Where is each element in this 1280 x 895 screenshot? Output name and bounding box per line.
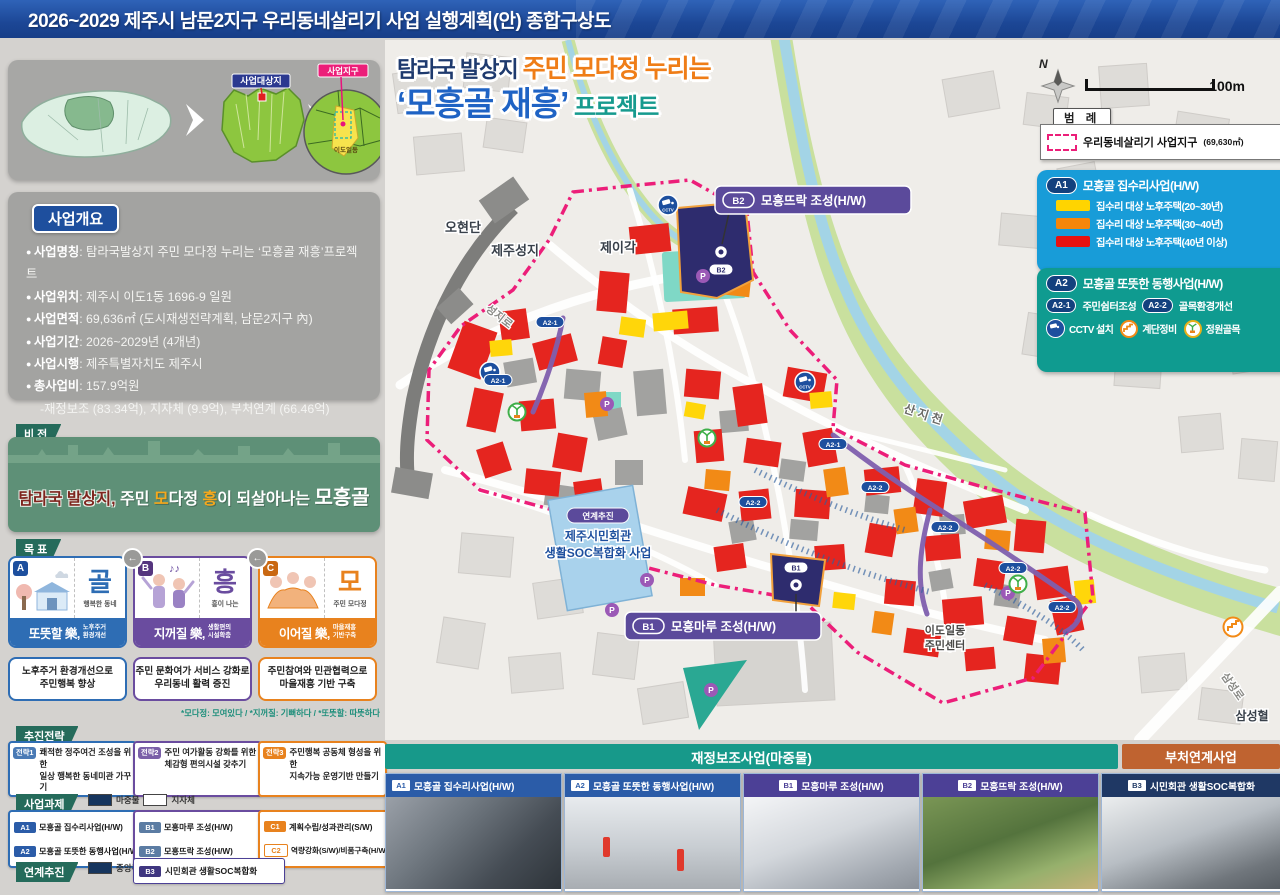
stairs-icon bbox=[1224, 618, 1243, 637]
card-badge: A1 bbox=[392, 780, 410, 791]
community-center-label-1: 이도일동 bbox=[925, 623, 965, 637]
compass-n: N bbox=[1039, 57, 1048, 71]
photo-a1-site-survey bbox=[386, 797, 561, 889]
left-arrow-icon: ← bbox=[122, 548, 143, 569]
headline-pre: 탐라국 발상지 bbox=[397, 57, 523, 82]
b2-callout-label: 모흥뜨락 조성(H/W) bbox=[761, 193, 866, 208]
card-title: 모흥뜨락 조성(H/W) bbox=[980, 779, 1062, 793]
legend-grade-3: 집수리 대상 노후주택(40년 이상) bbox=[1056, 234, 1280, 249]
task-item: B1모흥마루 조성(H/W) bbox=[139, 821, 258, 833]
goal-subtitle: 마을재흥 기반구축 bbox=[333, 624, 356, 639]
central-gov-swatch bbox=[88, 862, 112, 874]
strategy-1: 전략1 쾌적한 정주여건 조성을 위한 일상 행복한 동네미관 가꾸기 bbox=[8, 741, 137, 797]
garden-label: 정원골목 bbox=[1206, 321, 1240, 336]
task-item: B2모흥뜨락 조성(H/W) bbox=[139, 845, 258, 857]
overview-item: 사업시행: 제주특별자치도 제주시 bbox=[26, 353, 366, 375]
legend-district-item: 우리동네살리기 사업지구 (69,630㎡) bbox=[1040, 124, 1280, 160]
tasks-legend: 마중물 지자체 bbox=[88, 794, 195, 806]
dong-label: 이도일동 bbox=[334, 145, 358, 154]
b2-site: B2 bbox=[677, 202, 753, 298]
card-title: 시민회관 생활SOC복합화 bbox=[1150, 779, 1255, 793]
task-item: C2역량강화(S/W)/비품구축(H/W) bbox=[264, 844, 383, 857]
b1-callout-badge: B1 bbox=[642, 622, 655, 633]
district-badge: 사업지구 bbox=[327, 66, 358, 76]
goal-subtitle: 생활편의 시설확충 bbox=[208, 624, 231, 639]
a2-title: 모흥골 또뜻한 동행사업(H/W) bbox=[1083, 275, 1223, 292]
legend-grade-1: 집수리 대상 노후주택(20~30년) bbox=[1056, 198, 1280, 213]
overview-item: 사업기간: 2026~2029년 (4개년) bbox=[26, 331, 366, 353]
svg-text:P: P bbox=[644, 575, 650, 585]
legend-a1-panel: A1 모흥골 집수리사업(H/W) 집수리 대상 노후주택(20~30년) 집수… bbox=[1037, 170, 1280, 272]
local-gov-label: 지자체 bbox=[171, 794, 194, 806]
b1-site: B1 bbox=[771, 554, 825, 606]
project-card-b1: B1 모흥마루 조성(H/W) bbox=[743, 773, 920, 892]
page-title: 2026~2029 제주시 남문2지구 우리동네살리기 사업 실행계획(안) 종… bbox=[0, 6, 611, 33]
project-card-a1: A1 모흥골 집수리사업(H/W) bbox=[385, 773, 562, 892]
location-inset-maps: 사업대상지 이도일동 사업지구 bbox=[8, 60, 380, 180]
overview-item: 총사업비: 157.9억원 bbox=[26, 375, 366, 397]
strategy-3: 전략3 주민행복 공동체 형성을 위한 지속가능 운영기반 만들기 bbox=[258, 741, 387, 797]
photo-a2-street-rendering bbox=[565, 797, 740, 889]
linked-task-b3: B3 시민회관 생활SOC복합화 bbox=[133, 858, 285, 884]
jeju-island-map bbox=[22, 91, 171, 157]
goal-caption: 행복한 동네 bbox=[83, 598, 116, 608]
cctv-icon bbox=[1046, 319, 1065, 338]
b3-badge: B3 bbox=[139, 866, 161, 877]
map-headline: 탐라국 발상지 주민 모다정 누리는 ‘모흥골 재흥’ 프로젝트 bbox=[397, 54, 877, 124]
garden-icon bbox=[1184, 320, 1202, 338]
vision-box: 탐라국 발상지, 주민 모다정 흥이 되살아나는 모흥골 bbox=[8, 437, 380, 532]
ohyeondan-label: 오현단 bbox=[445, 220, 481, 235]
svg-text:P: P bbox=[700, 271, 706, 281]
svg-text:A2-2: A2-2 bbox=[746, 500, 761, 507]
subsidy-projects-header: 재정보조사업(마중물) bbox=[385, 744, 1118, 769]
b3-label: 시민회관 생활SOC복합화 bbox=[165, 865, 257, 877]
svg-text:A2-2: A2-2 bbox=[868, 485, 883, 492]
svg-text:A2-1: A2-1 bbox=[543, 320, 558, 327]
b2-callout-badge: B2 bbox=[732, 196, 744, 207]
local-gov-swatch bbox=[143, 794, 167, 806]
strategy-text: 주민 여가활동 강화를 위한 체감형 편의시설 갖추기 bbox=[164, 747, 256, 791]
chevron-right-icon bbox=[186, 104, 204, 136]
left-arrow-icon: ← bbox=[247, 548, 268, 569]
goal-caption: 흥이 나는 bbox=[212, 598, 239, 608]
overview-item: 사업명칭: 탐라국발상지 주민 모다정 누리는 ‘모흥골 재흥’프로젝트 bbox=[26, 241, 366, 286]
goal-description: 주민참여와 민관협력으로 마을재흥 기반 구축 bbox=[258, 657, 377, 701]
goal-subtitle: 노후주거 환경개선 bbox=[83, 624, 106, 639]
a2-1-label: 주민쉼터조성 bbox=[1082, 298, 1136, 313]
district-boundary-swatch bbox=[1047, 134, 1077, 151]
stairs-label: 계단정비 bbox=[1142, 321, 1176, 336]
linked-site-line2: 생활SOC복합화 사업 bbox=[545, 545, 652, 560]
goal-card-b: B ♪♪ 흥 흥이 나는 지꺼질 樂, 생활편의 시설확충 주민 문화여가 서비… bbox=[133, 556, 252, 701]
fortress-label: 제주성지 bbox=[491, 243, 539, 258]
district-label: 우리동네살리기 사업지구 bbox=[1083, 134, 1197, 150]
legend-a2-panel: A2 모흥골 또뜻한 동행사업(H/W) A2-1 주민쉼터조성 A2-2 골목… bbox=[1037, 268, 1280, 372]
svg-text:CCTV: CCTV bbox=[799, 385, 811, 390]
master-plan-map: B2 B1 연계추진 제주시민회관 생활SOC복합화 사업 오현단 제주성지 제… bbox=[385, 40, 1280, 740]
jeigak-label: 제이각 bbox=[600, 240, 636, 255]
overview-list: 사업명칭: 탐라국발상지 주민 모다정 누리는 ‘모흥골 재흥’프로젝트 사업위… bbox=[26, 241, 366, 420]
linked-site-tag: 연계추진 bbox=[582, 511, 613, 521]
goal-title: 또뜻할 樂, bbox=[29, 623, 80, 642]
photo-b3-soc-rendering bbox=[1102, 797, 1280, 889]
project-card-b3: B3 시민회관 생활SOC복합화 bbox=[1101, 773, 1280, 892]
svg-text:A2-1: A2-1 bbox=[826, 442, 841, 449]
card-title: 모흥골 집수리사업(H/W) bbox=[414, 779, 514, 793]
strategy-text: 쾌적한 정주여건 조성을 위한 일상 행복한 동네미관 가꾸기 bbox=[39, 747, 132, 791]
strategy-2: 전략2 주민 여가활동 강화를 위한 체감형 편의시설 갖추기 bbox=[133, 741, 262, 797]
strategy-text: 주민행복 공동체 형성을 위한 지속가능 운영기반 만들기 bbox=[289, 747, 382, 791]
title-bar: 2026~2029 제주시 남문2지구 우리동네살리기 사업 실행계획(안) 종… bbox=[0, 0, 1280, 38]
svg-text:A2-2: A2-2 bbox=[1055, 605, 1070, 612]
task-item: A1모흥골 집수리사업(H/W) bbox=[14, 821, 133, 833]
goal-description: 노후주거 환경개선으로 주민행복 향상 bbox=[8, 657, 127, 701]
strategy-badge: 전략3 bbox=[263, 747, 286, 759]
scale-label: 100m bbox=[1209, 78, 1245, 94]
plan-poster: { "titlebar": { "title": "2026~2029 제주시 … bbox=[0, 0, 1280, 895]
headline-tail: 프로젝트 bbox=[568, 94, 658, 121]
scale-bar: 100m bbox=[1085, 76, 1245, 98]
task-group-a: A1모흥골 집수리사업(H/W) A2모흥골 또뜻한 동행사업(H/W) bbox=[8, 810, 139, 868]
svg-text:♪♪: ♪♪ bbox=[169, 563, 180, 575]
card-badge: A2 bbox=[571, 780, 589, 791]
svg-text:P: P bbox=[708, 685, 714, 695]
task-item: C1계획수립/성과관리(S/W) bbox=[264, 821, 383, 833]
goal-letter-badge: A bbox=[13, 561, 28, 576]
a1-title: 모흥골 집수리사업(H/W) bbox=[1083, 177, 1199, 194]
north-compass-icon: N bbox=[1033, 56, 1079, 108]
card-title: 모흥마루 조성(H/W) bbox=[801, 779, 883, 793]
linked-tag: 연계추진 bbox=[16, 862, 78, 882]
strategy-badge: 전략1 bbox=[13, 747, 36, 759]
jeju-city-map: 사업대상지 bbox=[222, 74, 304, 162]
goal-description: 주민 문화여가 서비스 강화로 우리동네 활력 증진 bbox=[133, 657, 252, 701]
project-overview-panel: 사업개요 사업명칭: 탐라국발상지 주민 모다정 누리는 ‘모흥골 재흥’프로젝… bbox=[8, 192, 380, 400]
goal-title: 지꺼질 樂, bbox=[154, 623, 205, 642]
svg-text:CCTV: CCTV bbox=[662, 208, 674, 213]
goals-footnote: *모다정: 모여있다 / *지꺼질: 기뻐하다 / *또뜻할: 따뜻하다 bbox=[8, 707, 380, 719]
photo-b1-building-rendering bbox=[744, 797, 919, 889]
samseonghyeol-label: 삼성혈 bbox=[1235, 708, 1268, 723]
goal-hangul: 흥 bbox=[213, 569, 237, 595]
location-inset-panel: 사업대상지 이도일동 사업지구 bbox=[8, 60, 380, 180]
target-site-badge: 사업대상지 bbox=[240, 75, 281, 86]
vision-statement: 탐라국 발상지, 주민 모다정 흥이 되살아나는 모흥골 bbox=[8, 481, 380, 510]
card-badge: B2 bbox=[958, 780, 976, 791]
goal-hangul: 모 bbox=[338, 569, 362, 595]
overview-item: 사업위치: 제주시 이도1동 1696-9 일원 bbox=[26, 286, 366, 308]
stairs-icon bbox=[1120, 320, 1138, 338]
b1-callout-label: 모흥마루 조성(H/W) bbox=[671, 619, 776, 634]
budget-breakdown: -재정보조 (83.34억), 지자체 (9.9억), 부처연계 (66.46억… bbox=[26, 398, 366, 420]
photo-b2-park-aerial bbox=[923, 797, 1098, 889]
red-swatch bbox=[1056, 236, 1090, 247]
a1-pill: A1 bbox=[1046, 177, 1077, 194]
a2-2-label: 골목환경개선 bbox=[1179, 298, 1233, 313]
goal-card-a: A 골 행복한 동네 또뜻할 樂, 노후주거 환경개선 노후주거 환경개선으로 … bbox=[8, 556, 127, 701]
overview-item: 사업면적: 69,636㎡ (도시재생전략계획, 남문2지구 內) bbox=[26, 308, 366, 330]
b1-marker-label: B1 bbox=[792, 566, 801, 573]
project-card-b2: B2 모흥뜨락 조성(H/W) bbox=[922, 773, 1099, 892]
orange-swatch bbox=[1056, 218, 1090, 229]
legend-grade-2: 집수리 대상 노후주택(30~40년) bbox=[1056, 216, 1280, 231]
project-card-a2: A2 모흥골 또뜻한 동행사업(H/W) bbox=[564, 773, 741, 892]
svg-text:A2-2: A2-2 bbox=[1006, 566, 1021, 573]
headline-highlight: 주민 모다정 누리는 bbox=[523, 55, 711, 83]
b2-marker-label: B2 bbox=[717, 268, 726, 275]
svg-text:P: P bbox=[604, 399, 610, 409]
yellow-swatch bbox=[1056, 200, 1090, 211]
overview-header: 사업개요 bbox=[32, 204, 119, 233]
svg-text:P: P bbox=[609, 605, 615, 615]
a2-2-pill: A2-2 bbox=[1142, 298, 1172, 313]
svg-text:A2-2: A2-2 bbox=[938, 525, 953, 532]
svg-text:A2-1: A2-1 bbox=[491, 378, 506, 385]
goal-caption: 주민 모다정 bbox=[333, 598, 366, 608]
seed-money-swatch bbox=[88, 794, 112, 806]
goal-hangul: 골 bbox=[88, 569, 112, 595]
district-area: (69,630㎡) bbox=[1203, 136, 1243, 148]
cctv-label: CCTV 설치 bbox=[1069, 321, 1113, 336]
ministry-projects-header: 부처연계사업 bbox=[1122, 744, 1280, 769]
task-item: A2모흥골 또뜻한 동행사업(H/W) bbox=[14, 845, 133, 857]
card-badge: B3 bbox=[1128, 780, 1146, 791]
strategy-badge: 전략2 bbox=[138, 747, 161, 759]
seed-money-label: 마중물 bbox=[116, 794, 139, 806]
community-center-label-2: 주민센터 bbox=[925, 638, 965, 652]
district-zoom-map: 이도일동 사업지구 bbox=[304, 64, 380, 174]
card-badge: B1 bbox=[779, 780, 797, 791]
a2-pill: A2 bbox=[1046, 275, 1077, 292]
headline-main: ‘모흥골 재흥’ bbox=[397, 85, 568, 122]
linked-site-line1: 제주시민회관 bbox=[565, 528, 631, 543]
goal-title: 이어질 樂, bbox=[279, 623, 330, 642]
goal-card-c: C 모 주민 모다정 이어질 樂, 마을재흥 기반구축 주민참여와 민관협력으로… bbox=[258, 556, 377, 701]
card-title: 모흥골 또뜻한 동행사업(H/W) bbox=[593, 779, 714, 793]
a2-1-pill: A2-1 bbox=[1046, 298, 1076, 313]
village-silhouette bbox=[8, 437, 380, 463]
